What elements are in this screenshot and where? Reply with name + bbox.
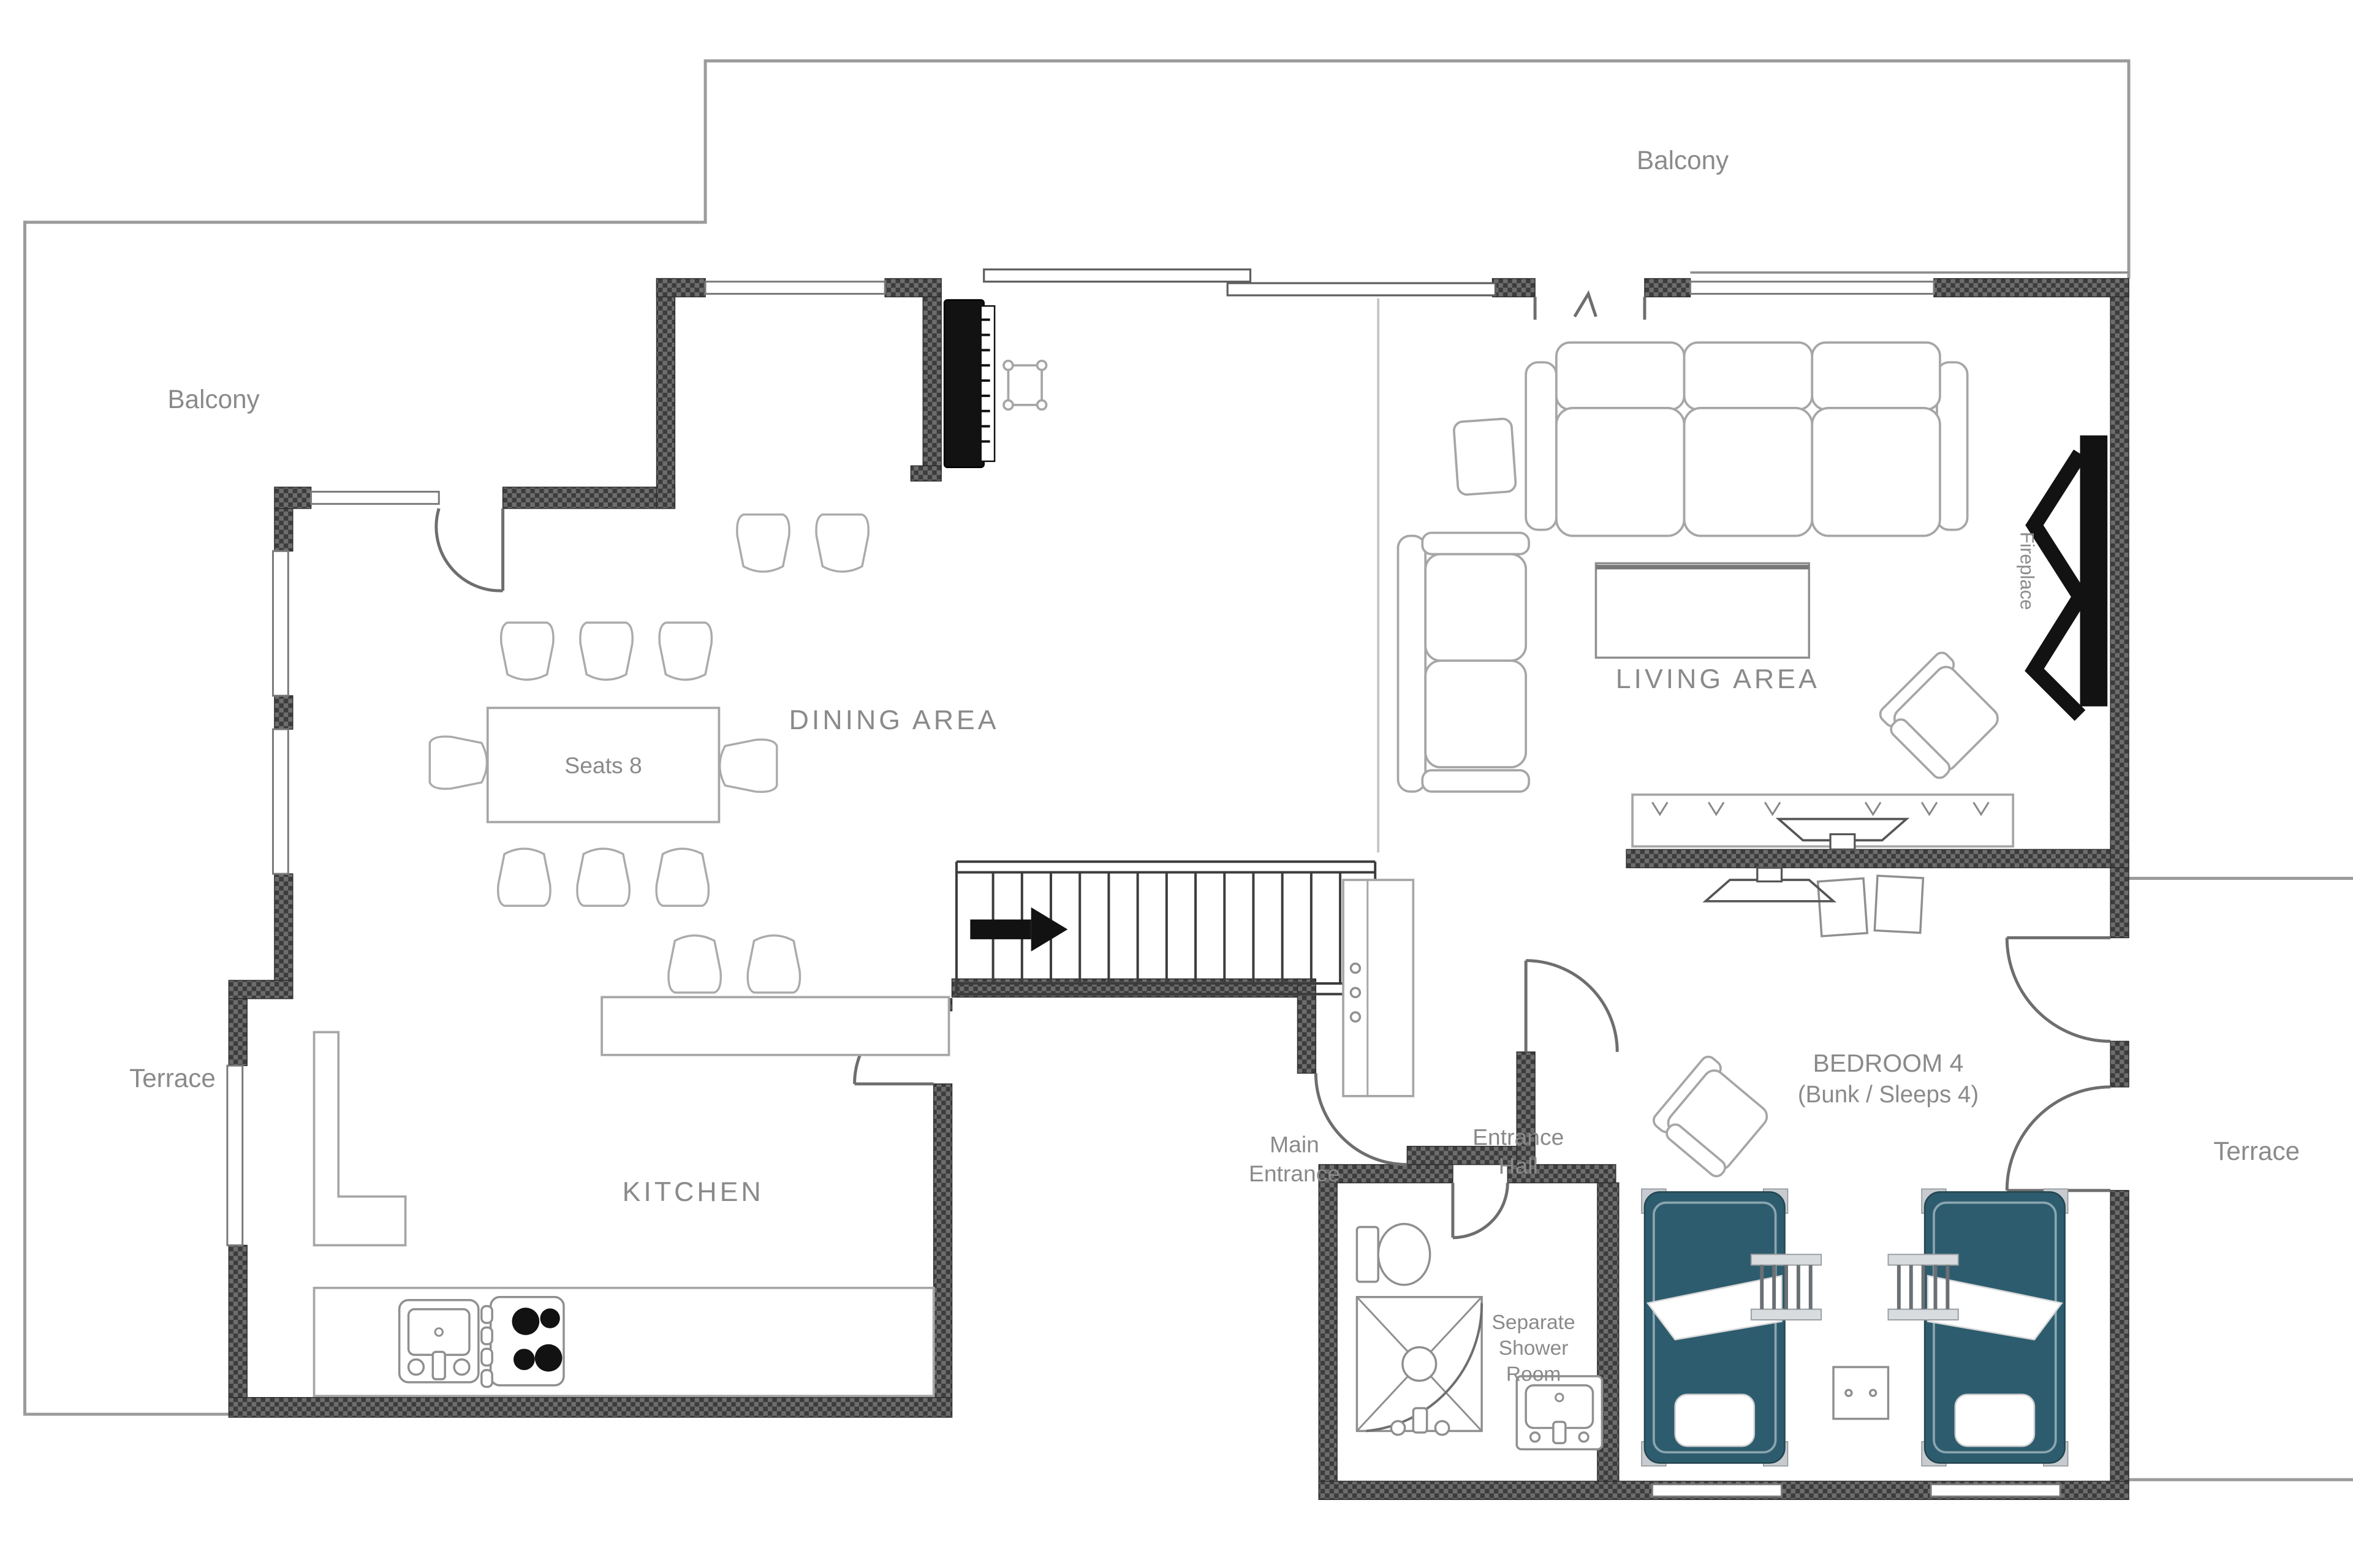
kitchen-bar-counter [602, 997, 949, 1055]
stair-direction-arrow-icon [970, 907, 1067, 952]
pillow [1675, 1395, 1754, 1446]
sofa-two-seat [1398, 533, 1529, 792]
balcony-outline [25, 61, 2129, 277]
tv-sideboard [1632, 795, 2013, 846]
bar-stool [748, 936, 800, 993]
bunk-ladder-icon [1888, 1254, 1958, 1320]
kitchen-left-counter [314, 1032, 406, 1245]
bedroom4-label: BEDROOM 4 [1813, 1049, 1964, 1077]
dining-chair [430, 737, 487, 789]
bedroom-terrace-door-2 [2007, 1087, 2110, 1191]
living-room-furniture [1398, 343, 2107, 849]
dining-balcony-door [436, 509, 503, 591]
bunk-bed-2 [1888, 1189, 2067, 1466]
dining-chair [498, 849, 550, 906]
bedroom-terrace-door-1 [2007, 937, 2110, 1041]
living-north-window [1691, 282, 1934, 294]
living-area-label: LIVING AREA [1616, 664, 1820, 694]
kitchen-sink [400, 1300, 479, 1382]
fireplace-label: Fireplace [2017, 532, 2038, 610]
piano [944, 300, 1046, 467]
sliding-door-panel-1 [984, 270, 1251, 282]
sofa-three-seat [1526, 343, 1967, 536]
floor-plan: BalconyBalconyTerraceTerraceDINING AREAS… [0, 0, 2353, 1568]
bunk-ladder-icon [1751, 1254, 1821, 1320]
dining-chair [720, 740, 777, 792]
seats-8-label: Seats 8 [564, 752, 642, 778]
sliding-door-panel-2 [1227, 283, 1495, 295]
floor-cushion [1874, 876, 1923, 933]
living-terrace-opening-marks [1535, 294, 1645, 320]
shower-room-3-label: Room [1506, 1363, 1561, 1385]
coffee-table [1596, 563, 1809, 657]
armchair [1875, 650, 2006, 781]
side-chair [737, 515, 789, 572]
bunk-bed-1 [1642, 1189, 1821, 1466]
dining-chair [580, 623, 632, 680]
shower-room-2-label: Shower [1499, 1337, 1569, 1360]
piano-stool [1008, 365, 1042, 405]
entrance-hall-1-label: Entrance [1472, 1124, 1564, 1149]
dining-set [430, 515, 868, 993]
side-pouf [1453, 419, 1516, 496]
entrance-hall-2-label: Hall [1499, 1153, 1538, 1179]
terrace-left-label: Terrace [129, 1064, 216, 1093]
terrace-right-label: Terrace [2213, 1137, 2300, 1165]
dining-chair [501, 623, 553, 680]
bedroom-door [1526, 961, 1617, 1052]
dining-west-window-1 [273, 551, 288, 695]
main-entrance-1-label: Main [1270, 1132, 1319, 1157]
side-chair [816, 515, 868, 572]
dining-chair [577, 849, 629, 906]
toilet-icon [1357, 1224, 1430, 1285]
hall-cabinet [1343, 880, 1413, 1096]
dining-north-window [311, 491, 439, 504]
dining-chair [656, 849, 708, 906]
floor-cushion [1818, 879, 1868, 936]
shower-room-1-label: Separate [1492, 1311, 1575, 1334]
balcony-top-label: Balcony [1637, 146, 1729, 175]
kitchen-west-window [227, 1066, 243, 1245]
main-entrance-2-label: Entrance [1249, 1161, 1340, 1186]
dining-chair [659, 623, 711, 680]
pillow [1955, 1395, 2034, 1446]
balcony-left-label: Balcony [167, 385, 260, 414]
dining-area-label: DINING AREA [789, 705, 999, 735]
corner-shower-icon [1357, 1297, 1482, 1435]
kitchen-stove [482, 1297, 564, 1387]
tv-bedroom-icon [1705, 868, 1833, 901]
nightstand [1833, 1367, 1888, 1418]
bedroom-window-2 [1931, 1484, 2060, 1496]
dining-west-window-2 [273, 729, 288, 874]
bar-stool [669, 936, 721, 993]
shower-room-door [1453, 1183, 1507, 1237]
bedroom-armchair [1650, 1054, 1775, 1180]
fireplace-icon [2034, 436, 2107, 716]
piano-bay-window [705, 282, 885, 294]
bedroom4-sub-label: (Bunk / Sleeps 4) [1798, 1081, 1979, 1108]
basin-icon [1517, 1376, 1602, 1449]
kitchen-label: KITCHEN [623, 1177, 764, 1207]
bedroom-window-1 [1652, 1484, 1781, 1496]
bedroom4-furniture [1642, 868, 2068, 1466]
